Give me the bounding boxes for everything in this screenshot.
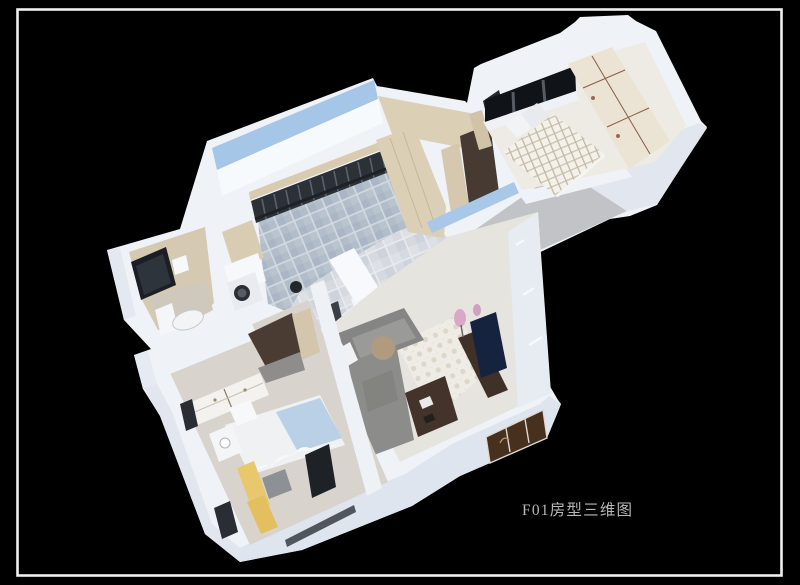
- svg-text:F01房型三维图: F01房型三维图: [522, 501, 633, 519]
